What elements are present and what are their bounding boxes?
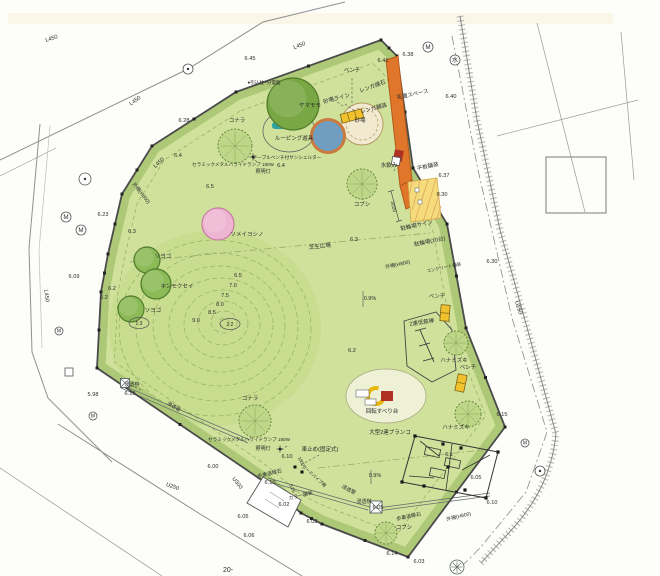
plan-label: 6.5: [234, 273, 242, 279]
rotary-slide-body: [381, 391, 393, 401]
tree-konara: [239, 405, 271, 437]
plan-label: 6.4: [277, 163, 285, 169]
plan-label: 砂場: [354, 116, 366, 124]
plan-label: L450: [42, 289, 49, 302]
plan-label: 6.5: [206, 184, 214, 190]
plan-label: 6.37: [439, 173, 450, 179]
tree-someiyoshino: [202, 208, 234, 240]
plan-label: ベンチ: [460, 364, 477, 371]
plan-label: 6.00: [208, 464, 219, 470]
plan-label: ヤマモモ: [299, 102, 321, 109]
tree-konara: [218, 129, 252, 163]
plan-label: 照明灯: [255, 445, 270, 452]
plan-label: コブシ: [354, 200, 371, 208]
plan-label: 平板舗装: [416, 160, 440, 173]
plan-label: テーブルベンチ付サンシェルター: [253, 154, 322, 161]
plan-label: L450: [45, 34, 59, 44]
plan-label: 6.06: [244, 533, 255, 539]
bench: [440, 305, 450, 322]
fence-post: [380, 39, 383, 42]
fence-post: [364, 539, 367, 542]
bicycle-parking-area: [408, 178, 441, 222]
fence-post: [179, 423, 182, 426]
fence-post: [307, 65, 310, 68]
plan-label: セラミックメタルハライドランプ 180W: [192, 161, 275, 168]
plan-label: 0.9%: [369, 473, 382, 479]
plan-label: 6.10: [125, 391, 136, 397]
fence-post: [121, 193, 124, 196]
circleM-symbol: M: [55, 327, 63, 335]
svg-text:1:2: 1:2: [227, 322, 234, 328]
plan-label: 7.0: [229, 283, 237, 289]
plan-label: キンモクセイ: [161, 283, 194, 290]
svg-text:M: M: [425, 44, 430, 51]
plan-label: L450: [293, 41, 307, 51]
swing-post: [422, 484, 425, 487]
circleM-symbol: M: [76, 225, 86, 235]
plan-label: ハナミズキ: [442, 423, 470, 431]
plan-label: U250: [513, 300, 523, 315]
plan-label: U300: [230, 476, 243, 490]
plan-label: ソメイヨシノ: [230, 231, 263, 238]
tree-highlight: [269, 80, 306, 117]
plan-label: 6.28: [179, 118, 190, 124]
plan-label: ベンチ: [429, 293, 446, 300]
plan-label: ハナミズキ: [440, 356, 468, 364]
plan-label: 6.4: [174, 153, 182, 159]
plan-label: 大型2連ブランコ: [369, 428, 411, 436]
plan-label: 9.0: [192, 318, 200, 324]
scan-band: [8, 13, 613, 24]
plan-label: 6.10: [487, 500, 498, 506]
circleDot-symbol: [183, 64, 193, 74]
survey-line-2: [497, 100, 638, 136]
survey-line-3: [621, 32, 634, 180]
fence-post: [484, 376, 487, 379]
plan-label: 6.10: [265, 480, 276, 486]
fence-post: [388, 47, 391, 50]
fence-post: [465, 327, 468, 330]
park-plan-svg: M水MMMMM1:31:2 L450L450L450L450L450U250U3…: [0, 0, 660, 576]
circleTree-symbol: [450, 560, 464, 574]
plan-label: 6.30: [437, 192, 448, 198]
circleM-symbol: M: [423, 42, 433, 52]
svg-text:M: M: [78, 227, 83, 234]
plan-label: 浸透桝: [124, 381, 139, 388]
circleDot-symbol: [535, 466, 545, 476]
plan-label: 8.5: [208, 310, 216, 316]
plan-label: コナラ: [242, 395, 259, 402]
fence-post: [114, 223, 117, 226]
plan-label: 6.40: [446, 94, 457, 100]
plan-label: 6.02: [279, 502, 290, 508]
plan-label: 6.05: [373, 505, 384, 511]
svg-text:M: M: [63, 214, 68, 221]
plan-label: 20-: [223, 567, 234, 574]
slide-deck-1: [356, 390, 369, 397]
swing-post: [459, 446, 462, 449]
svg-text:M: M: [523, 441, 527, 447]
swing-post: [446, 465, 449, 468]
swing-post: [496, 450, 499, 453]
fence-post: [107, 253, 110, 256]
adjacent-lot-rect: [546, 157, 606, 213]
tree-highlight: [135, 248, 154, 267]
circleWater-symbol: 水: [450, 55, 460, 65]
plan-label: ●引込柱~分電盤: [247, 79, 280, 86]
fence-post: [446, 223, 449, 226]
fence-post: [193, 118, 196, 121]
plan-label: ソヨゴ: [155, 252, 172, 260]
svg-text:M: M: [57, 329, 61, 335]
plan-label: コブシ: [396, 523, 413, 531]
plan-label: セラミックメタルハライドランプ 180W: [208, 436, 291, 443]
swing-post: [413, 434, 416, 437]
plan-label: 水飲み: [381, 161, 398, 169]
fence-post: [300, 512, 303, 515]
svg-text:1:3: 1:3: [136, 321, 143, 327]
plan-label: 6.45: [245, 56, 256, 62]
fence-post: [455, 275, 458, 278]
plan-label: U250: [165, 482, 180, 492]
svg-text:水: 水: [452, 55, 459, 64]
road-southwest-edge: [0, 468, 162, 576]
tree-kobushi: [375, 522, 397, 544]
tree-kobushi: [347, 169, 377, 199]
plan-label: 6.3: [128, 229, 136, 235]
tree-soyogo: [118, 296, 144, 322]
fence-post: [235, 91, 238, 94]
road-west-edge: [39, 126, 50, 348]
circleM-symbol: M: [61, 212, 71, 222]
slide-deck-2: [365, 399, 376, 405]
plan-label: 6.38: [403, 52, 414, 58]
fence-post: [151, 145, 154, 148]
plan-label: 6.41: [378, 58, 389, 64]
table-bench-sun-shelter: [312, 120, 345, 153]
plan-label: 6.05: [238, 514, 249, 520]
site-plan-canvas: M水MMMMM1:31:2 L450L450L450L450L450U250U3…: [0, 0, 660, 576]
fence-post: [321, 523, 324, 526]
plan-label: 浸透桝: [356, 498, 371, 505]
square-symbol: [65, 368, 73, 376]
swing-post: [400, 480, 403, 483]
plan-label: 5.98: [88, 392, 99, 398]
plan-label: 6.30: [487, 259, 498, 265]
fence-post: [504, 426, 507, 429]
plan-label: 車止め(固定式): [302, 445, 339, 453]
plan-label: 回転すべり台: [366, 407, 399, 415]
plan-label: 外柵(H800): [446, 510, 473, 523]
plan-label: 6.15: [497, 412, 508, 418]
circleM-symbol: M: [89, 412, 97, 420]
plan-label: ベンチ: [344, 67, 361, 74]
circleM-symbol: M: [521, 439, 529, 447]
svg-text:M: M: [91, 414, 95, 420]
fence-post: [96, 367, 99, 370]
plan-label: 照明灯: [255, 168, 270, 175]
plan-label: 6.10: [282, 454, 293, 460]
swing-post: [463, 488, 466, 491]
plan-label: 6.3: [350, 237, 358, 243]
circleDot-symbol: [79, 173, 91, 185]
dotsq-symbol: [301, 471, 304, 474]
fence-post: [103, 272, 106, 275]
plan-label: 6.2: [108, 286, 116, 292]
fence-post: [412, 167, 415, 170]
plan-label: 6.03: [307, 519, 318, 525]
plan-label: 6.2: [348, 348, 356, 354]
fence-post: [407, 556, 410, 559]
plan-label: コナラ: [229, 117, 246, 124]
survey-line-1: [537, 23, 585, 212]
tree-hanamizuki: [455, 401, 481, 427]
tree-highlight: [203, 209, 226, 232]
fence-post: [100, 291, 103, 294]
plan-label: 8.0: [216, 302, 224, 308]
fence-post: [136, 169, 139, 172]
plan-label: 6.14: [387, 551, 398, 557]
parking-marker-1: [415, 188, 419, 192]
property-line-east: [452, 36, 547, 566]
plan-label: 0.9%: [364, 296, 377, 302]
fence-post: [98, 329, 101, 332]
plan-label: 6.03: [414, 559, 425, 565]
tree-highlight: [119, 297, 138, 316]
plan-label: 7.5: [221, 293, 229, 299]
plan-label: 6.05: [471, 475, 482, 481]
plan-label: 6.1: [445, 452, 453, 458]
plan-label: ソヨゴ: [145, 306, 162, 314]
parking-marker-2: [418, 200, 422, 204]
dotsq-symbol: [294, 466, 297, 469]
tree-hanamizuki: [444, 331, 468, 355]
plan-label: 6.23: [98, 212, 109, 218]
plan-label: 6.09: [69, 274, 80, 280]
plan-label: 6.2: [100, 295, 108, 301]
plan-label: ルーピング遊具: [275, 134, 314, 142]
swing-post: [441, 442, 444, 445]
